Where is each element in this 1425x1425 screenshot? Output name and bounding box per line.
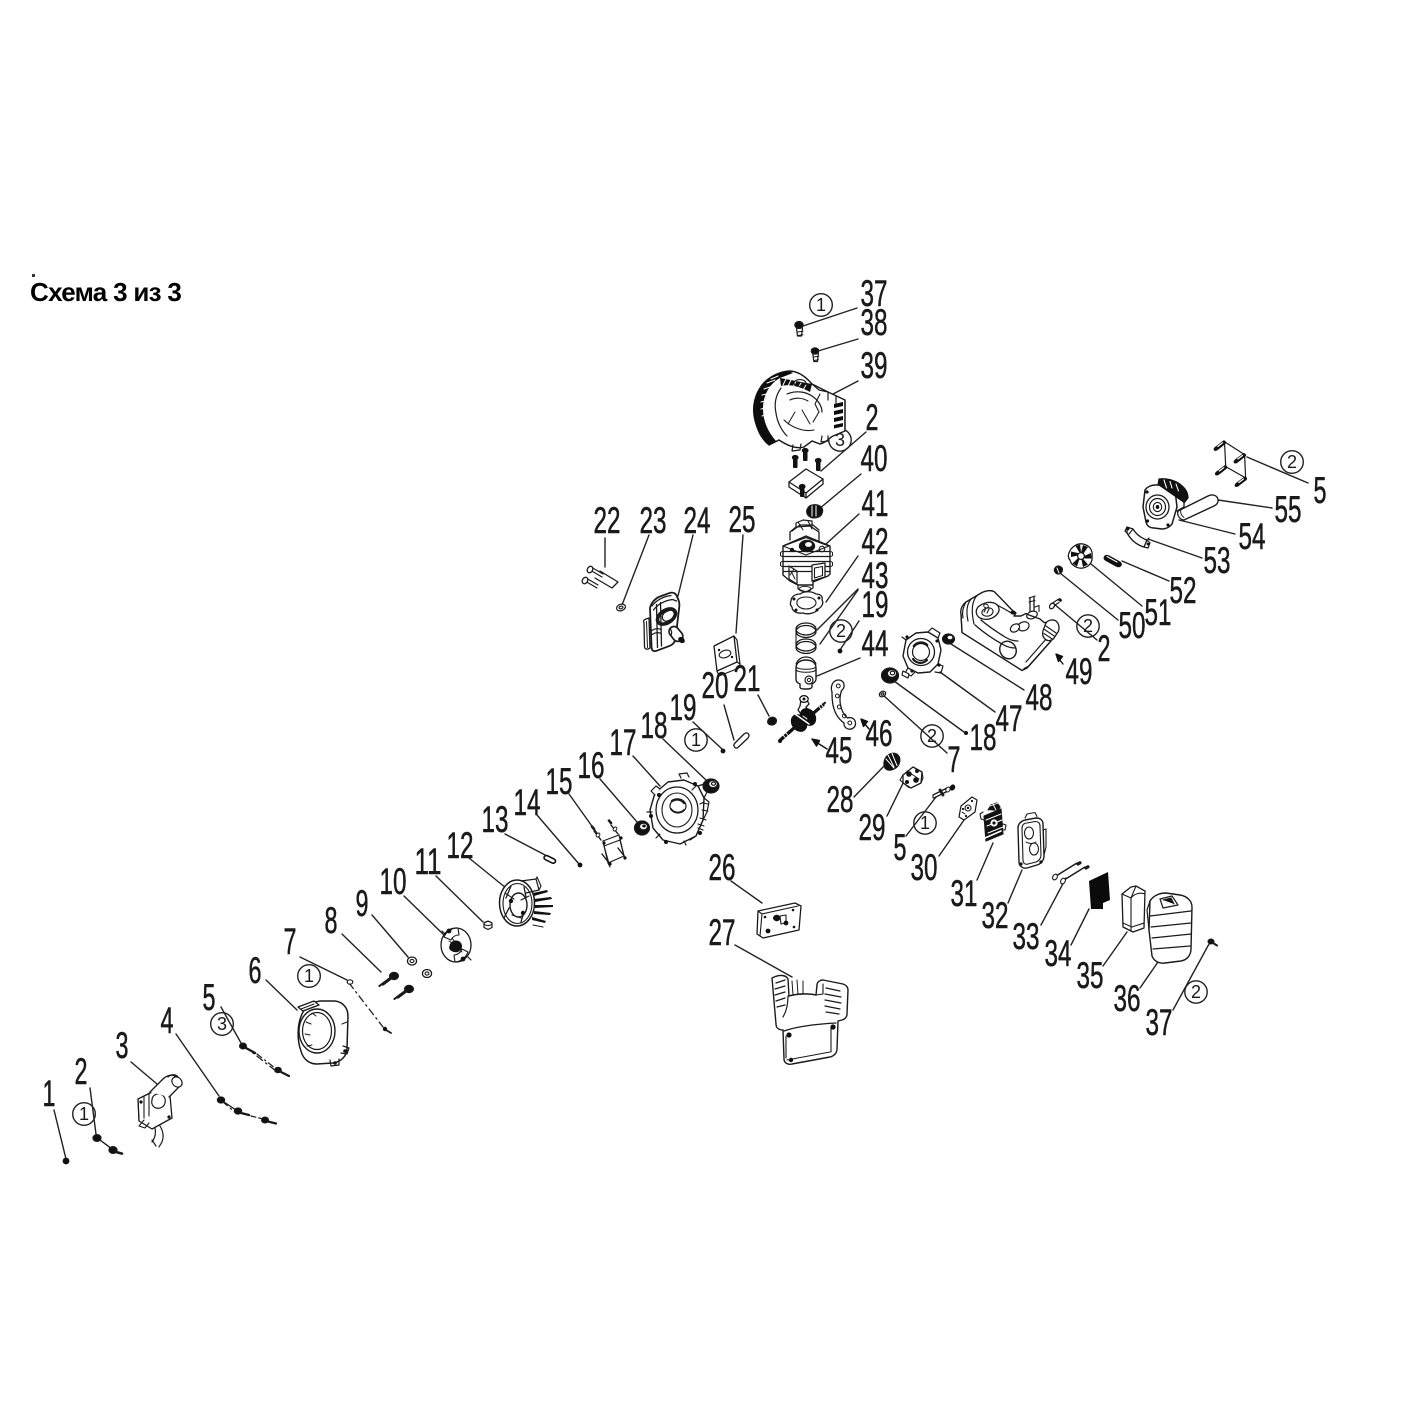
svg-text:2: 2 [866,397,879,438]
svg-text:28: 28 [827,779,854,820]
svg-text:39: 39 [861,345,888,386]
svg-text:7: 7 [284,921,297,962]
svg-text:1: 1 [79,1104,89,1124]
svg-text:23: 23 [640,500,667,541]
svg-text:49: 49 [1066,651,1093,692]
svg-text:10: 10 [380,861,407,902]
svg-text:14: 14 [514,782,541,823]
svg-text:1: 1 [816,295,826,315]
svg-text:40: 40 [861,438,888,479]
svg-text:34: 34 [1045,933,1072,974]
svg-text:52: 52 [1170,570,1197,611]
svg-text:5: 5 [894,827,907,868]
svg-text:50: 50 [1119,605,1146,646]
svg-text:16: 16 [578,745,605,786]
svg-text:1: 1 [691,730,701,750]
svg-text:1: 1 [920,813,930,833]
svg-text:2: 2 [1287,452,1297,472]
svg-text:15: 15 [546,761,573,802]
svg-text:2: 2 [75,1051,88,1092]
svg-text:38: 38 [861,302,888,343]
svg-text:13: 13 [482,799,509,840]
svg-text:3: 3 [217,1014,227,1034]
svg-text:44: 44 [862,623,889,664]
svg-text:19: 19 [862,584,889,625]
svg-text:27: 27 [709,912,736,953]
svg-text:35: 35 [1077,955,1104,996]
svg-text:2: 2 [1083,616,1093,636]
svg-text:41: 41 [862,483,889,524]
svg-text:11: 11 [415,841,442,882]
svg-text:19: 19 [670,687,697,728]
svg-text:22: 22 [594,500,621,541]
svg-text:2: 2 [927,726,937,746]
svg-text:29: 29 [859,807,886,848]
svg-text:8: 8 [325,900,338,941]
svg-text:47: 47 [996,698,1023,739]
svg-text:48: 48 [1026,677,1053,718]
svg-text:2: 2 [1098,628,1111,669]
svg-text:1: 1 [304,966,314,986]
svg-text:33: 33 [1013,916,1040,957]
svg-text:46: 46 [866,713,893,754]
svg-text:7: 7 [948,739,961,780]
svg-text:21: 21 [734,658,761,699]
svg-text:54: 54 [1239,516,1266,557]
svg-text:24: 24 [684,500,711,541]
svg-text:51: 51 [1145,592,1172,633]
svg-text:2: 2 [1191,982,1201,1002]
svg-text:20: 20 [702,665,729,706]
svg-text:53: 53 [1204,540,1231,581]
svg-text:31: 31 [951,873,978,914]
svg-text:1: 1 [43,1073,56,1114]
svg-text:5: 5 [1314,470,1327,511]
svg-text:32: 32 [982,895,1009,936]
svg-text:36: 36 [1114,978,1141,1019]
svg-text:25: 25 [729,499,756,540]
svg-text:3: 3 [116,1025,129,1066]
svg-text:4: 4 [161,1000,174,1041]
svg-text:6: 6 [249,950,262,991]
svg-text:5: 5 [203,977,216,1018]
svg-text:18: 18 [641,705,668,746]
svg-text:17: 17 [610,722,637,763]
svg-text:18: 18 [970,717,997,758]
svg-text:9: 9 [356,883,369,924]
svg-text:26: 26 [709,847,736,888]
svg-text:45: 45 [826,730,853,771]
svg-text:2: 2 [836,621,846,641]
svg-text:30: 30 [911,847,938,888]
svg-text:37: 37 [1146,1002,1173,1043]
svg-text:55: 55 [1275,489,1302,530]
svg-text:12: 12 [447,825,474,866]
svg-text:Схема 3 из 3: Схема 3 из 3 [30,277,181,307]
